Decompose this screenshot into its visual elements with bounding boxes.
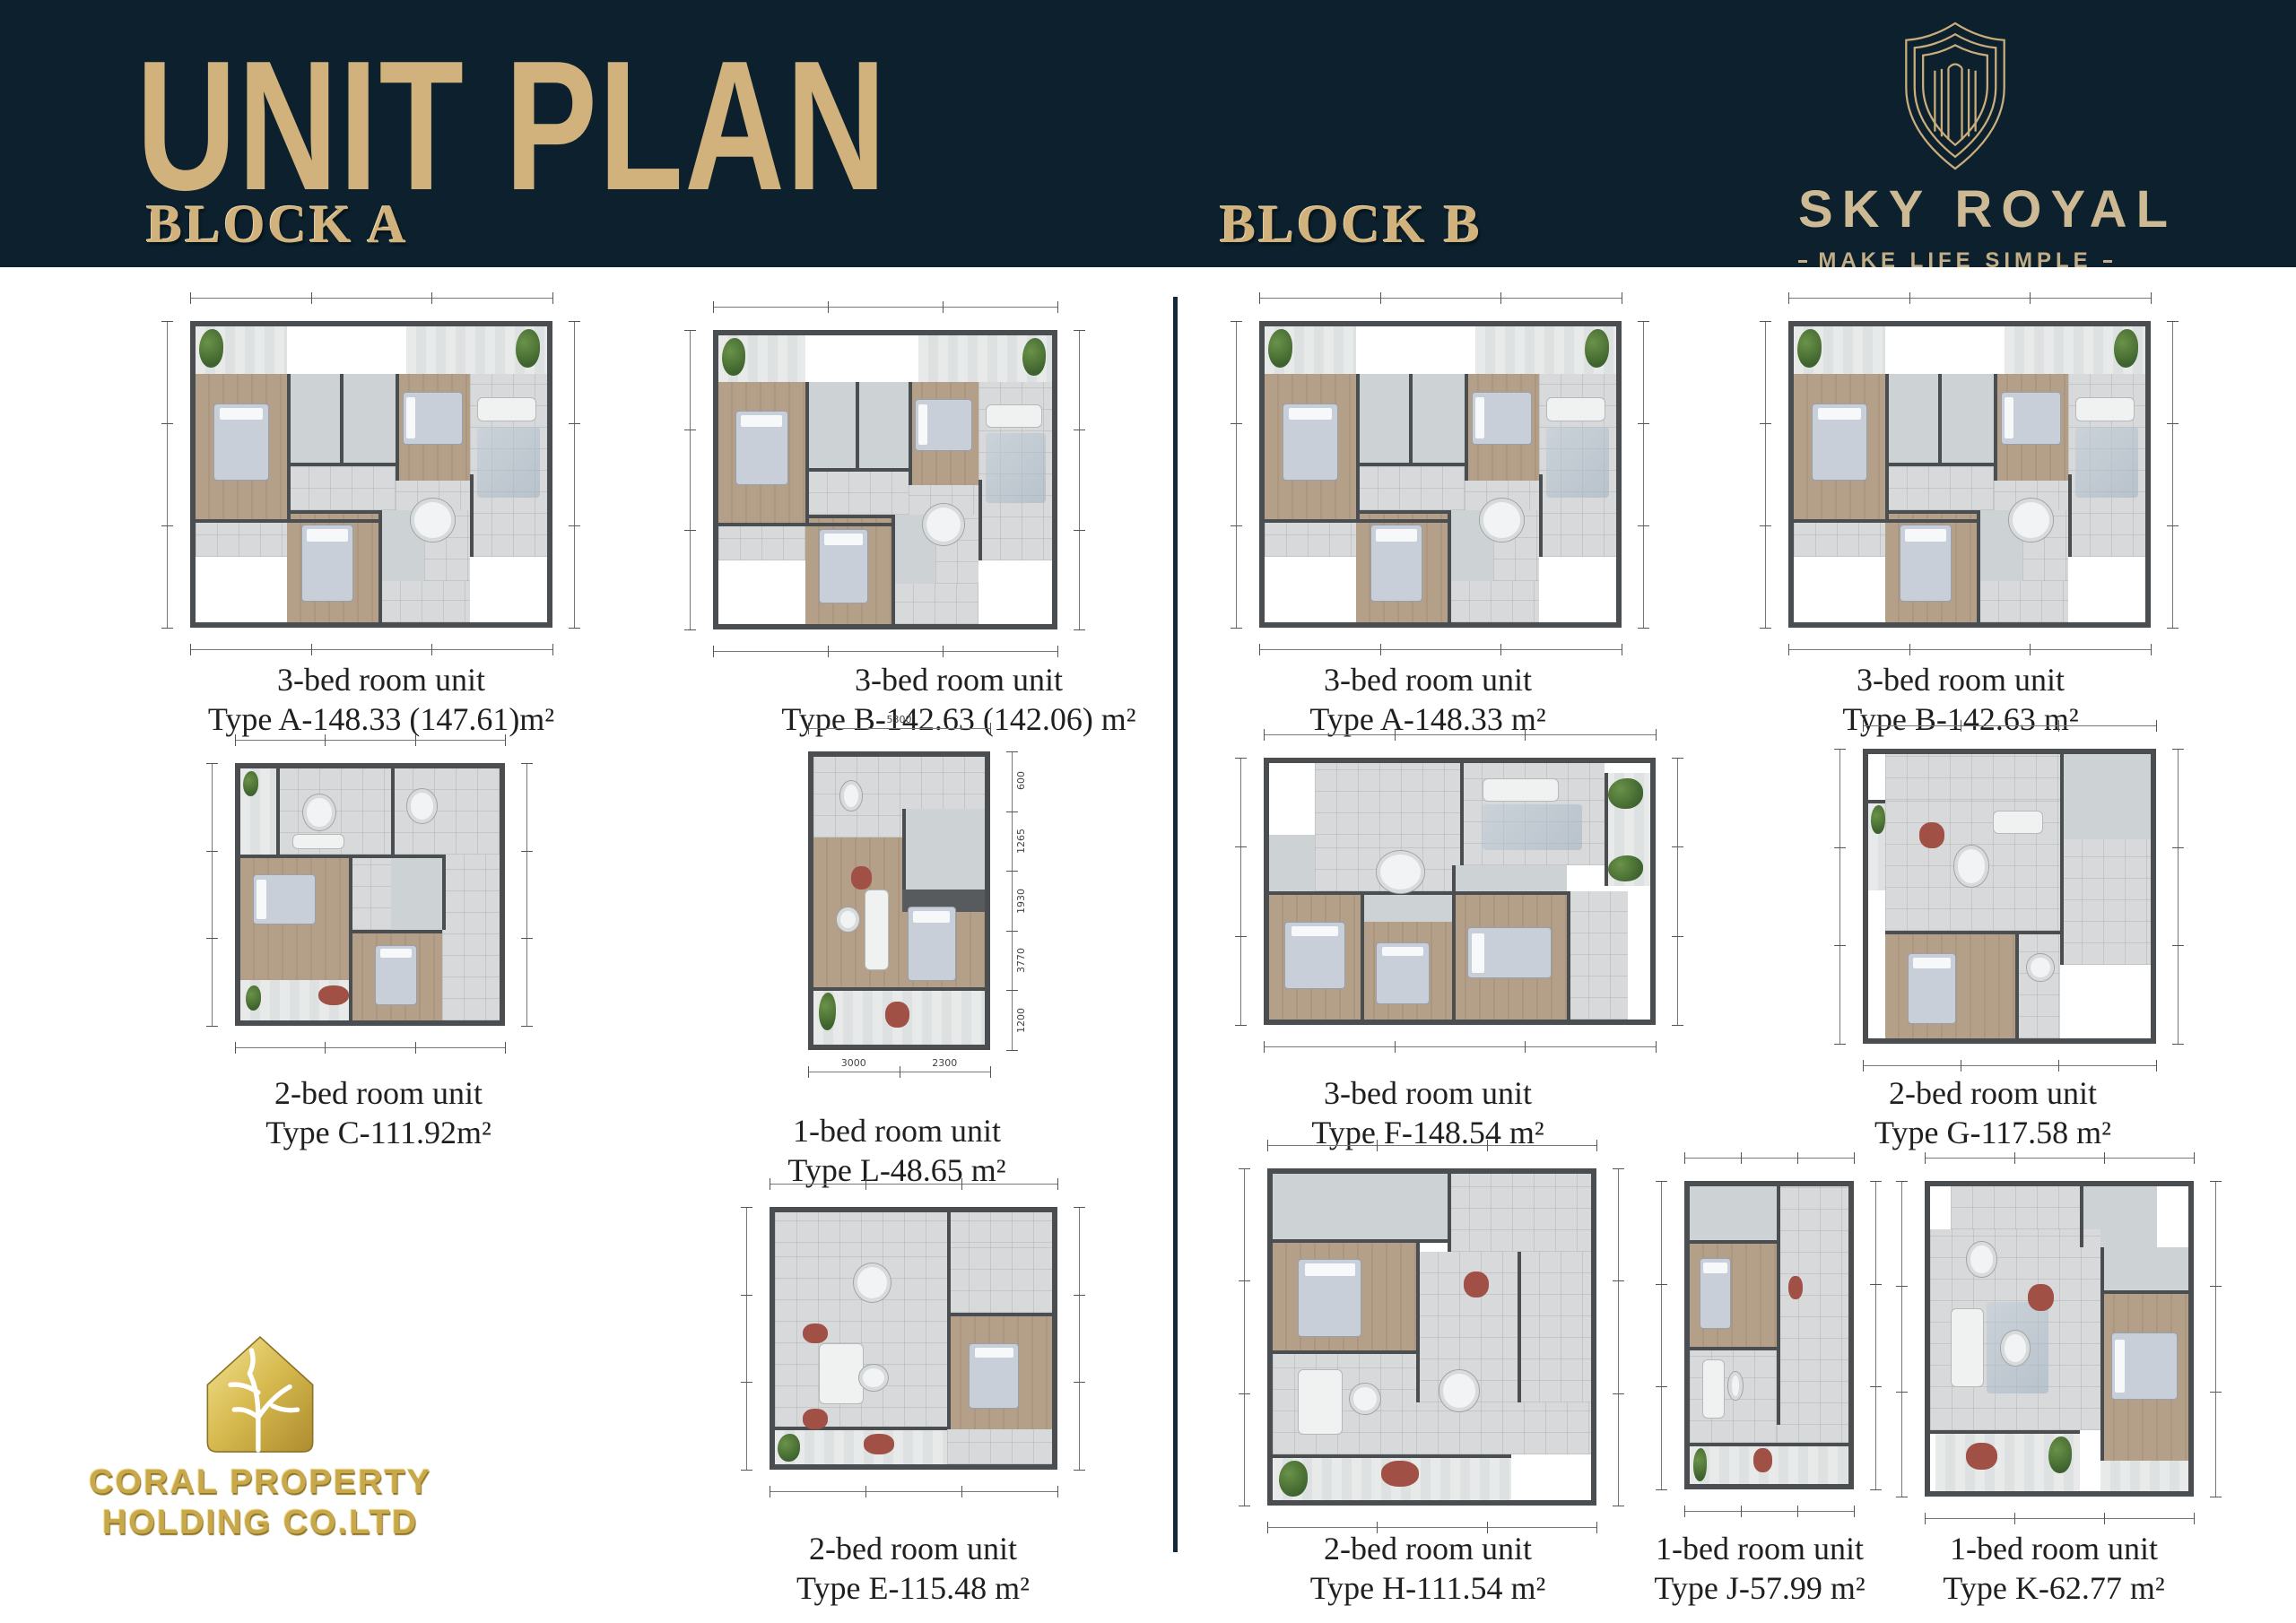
dimension-tick (190, 292, 191, 304)
dimension-tick (1074, 1382, 1085, 1383)
interior-wall (349, 855, 352, 1020)
interior-wall (470, 474, 474, 557)
interior-wall (1409, 374, 1413, 463)
interior-wall (196, 519, 378, 523)
dimension-tick (2210, 1286, 2222, 1287)
dimension-tick (1961, 1060, 1961, 1072)
dimension-tick (1854, 1152, 1855, 1164)
dining-table-icon (1439, 1369, 1480, 1411)
chair-icon (803, 1324, 828, 1343)
room-tile (1315, 763, 1460, 835)
room-bath (2100, 1247, 2188, 1290)
interior-wall (2100, 1247, 2104, 1461)
dimension-tick (521, 938, 533, 939)
plant-icon (1585, 329, 1609, 368)
interior-wall (1690, 1347, 1777, 1350)
floor-plan-block-b-type-j (1684, 1181, 1854, 1489)
interior-wall (805, 515, 892, 518)
room-void (1511, 1454, 1591, 1500)
interior-wall (775, 1427, 947, 1430)
room-tile (1794, 522, 1885, 558)
unit-caption-block-a-type-c: 2-bed room unitType C-111.92m² (100, 1074, 657, 1153)
dimension-rail (1240, 758, 1241, 1025)
room-void (2068, 557, 2145, 622)
dimension-tick (569, 525, 580, 526)
room-tile (2015, 931, 2060, 1038)
dimension-tick (2172, 1044, 2184, 1045)
dimension-tick (865, 1486, 866, 1497)
dimension-label: 1200 (1015, 994, 1027, 1047)
dimension-tick (2014, 1152, 2015, 1164)
dimension-tick (2194, 1513, 2195, 1524)
dimension-tick (741, 1207, 752, 1208)
room-bath (1409, 374, 1465, 463)
room-tile (287, 463, 396, 510)
dimension-rail (1788, 298, 2151, 299)
dimension-rail (1012, 751, 1013, 1050)
dimension-tick (1006, 871, 1018, 872)
dimension-tick (1672, 758, 1683, 759)
dimension-tick (552, 644, 553, 655)
dimension-tick (569, 628, 580, 629)
interior-wall (1448, 510, 1451, 622)
room-tile (1951, 1186, 2080, 1229)
dimension-rail (713, 651, 1057, 652)
dimension-tick (1638, 321, 1649, 322)
company-name-line1: CORAL PROPERTY (85, 1463, 435, 1502)
dimension-tick (1638, 423, 1649, 424)
dimension-tick (1259, 292, 1260, 304)
dimension-rail (1264, 1046, 1656, 1047)
room-tile (718, 526, 805, 561)
sofa-icon (2075, 397, 2135, 421)
dimension-tick (1834, 1044, 1846, 1045)
room-tile (1885, 463, 1995, 510)
dimension-tick (431, 644, 432, 655)
dining-table-icon (1966, 1241, 1997, 1278)
dimension-tick (1909, 292, 1910, 304)
plant-icon (1022, 338, 1046, 376)
rug-icon (477, 427, 541, 498)
unit-caption-type: 1-bed room unit (619, 1112, 1175, 1151)
dimension-tick (1613, 1280, 1624, 1281)
room-tile (891, 584, 978, 624)
room-void (1885, 326, 2005, 374)
dimension-tick (1487, 1140, 1488, 1151)
interior-wall (1794, 519, 1977, 523)
dimension-tick (161, 423, 173, 424)
chair-icon (2028, 1284, 2054, 1312)
dimension-tick (684, 430, 696, 430)
room-tile (1567, 891, 1628, 1020)
dimension-rail (235, 740, 505, 741)
bed-icon (1284, 922, 1345, 988)
dimension-tick (1074, 430, 1085, 430)
chair-icon (851, 866, 872, 890)
interior-wall (1265, 519, 1448, 523)
dimension-tick (1896, 1181, 1908, 1182)
interior-wall (2080, 1186, 2083, 1247)
dimension-tick (1672, 846, 1683, 847)
room-tile (349, 855, 390, 930)
interior-wall (1777, 1186, 1780, 1425)
dimension-tick (1259, 644, 1260, 655)
dimension-tick (325, 1042, 326, 1054)
unit-block-b-type-g (1822, 707, 2197, 1085)
dimension-tick (1074, 330, 1085, 331)
dimension-tick (2104, 1152, 2105, 1164)
room-tile (1777, 1425, 1848, 1443)
room-tile (442, 855, 500, 1020)
room-tile (947, 1429, 1052, 1464)
room-tile (1518, 1252, 1591, 1402)
dimension-tick (1788, 644, 1789, 655)
dimension-tick (505, 1042, 506, 1054)
dimension-tick (713, 301, 714, 313)
floor-plan-block-b-type-g (1863, 749, 2156, 1044)
unit-caption-type: 3-bed room unit (103, 661, 659, 700)
dimension-rail (1863, 1065, 2156, 1066)
dimension-tick (808, 723, 809, 734)
sofa-icon (1993, 811, 2044, 833)
room-void (1930, 1186, 1951, 1229)
room-bath (805, 382, 856, 469)
dimension-rail (1661, 1181, 1662, 1489)
interior-wall (1273, 1454, 1511, 1458)
dimension-tick (961, 1486, 962, 1497)
dimension-rail (1863, 725, 2156, 726)
plant-icon (1871, 805, 1885, 834)
dimension-tick (1231, 423, 1242, 424)
room-tile (947, 1212, 1052, 1243)
dimension-rail (526, 763, 527, 1026)
plant-icon (2114, 329, 2138, 368)
dining-table-icon (1479, 498, 1525, 542)
bed-icon (1467, 927, 1552, 978)
unit-caption-area: Type C-111.92m² (100, 1114, 657, 1153)
dimension-tick (2151, 292, 2152, 304)
plant-icon (1608, 778, 1642, 809)
chair-icon (803, 1409, 828, 1428)
rug-icon (1546, 427, 1610, 498)
interior-wall (1518, 1252, 1521, 1402)
room-void (1356, 326, 1475, 374)
dimension-tick (1239, 1280, 1250, 1281)
bed-icon (915, 399, 971, 451)
bed-icon (375, 945, 416, 1005)
unit-block-b-type-h (1226, 1127, 1638, 1547)
dimension-tick (1057, 301, 1058, 313)
interior-wall (1977, 510, 1980, 622)
room-tile (196, 522, 287, 558)
sofa-icon (865, 890, 889, 970)
dimension-tick (1863, 1060, 1864, 1072)
plant-icon (516, 329, 540, 368)
sofa-icon (1483, 778, 1559, 802)
room-tile (378, 581, 470, 622)
plant-icon (778, 1434, 800, 1462)
sofa-icon (1702, 1359, 1725, 1419)
dining-table-icon (1376, 850, 1425, 894)
dimension-tick (1235, 758, 1247, 759)
dimension-tick (206, 1026, 218, 1027)
dimension-rail (713, 307, 1057, 308)
bed-icon (1298, 1259, 1361, 1337)
unit-caption-type: 1-bed room unit (1776, 1530, 2296, 1569)
dimension-tick (1656, 1284, 1667, 1285)
dimension-tick (943, 646, 944, 657)
dimension-rail (1677, 758, 1678, 1025)
dimension-tick (190, 644, 191, 655)
dimension-tick (2156, 720, 2157, 732)
unit-block-b-type-f (1222, 716, 1697, 1066)
dimension-tick (1074, 1470, 1085, 1471)
dimension-tick (431, 292, 432, 304)
dimension-tick (808, 1066, 809, 1078)
interior-wall (396, 374, 399, 481)
dimension-rail (1684, 1158, 1854, 1159)
interior-wall (2100, 1290, 2188, 1294)
dimension-tick (2194, 1152, 2195, 1164)
dimension-tick (2210, 1392, 2222, 1393)
dimension-tick (1074, 1207, 1085, 1208)
dimension-tick (1788, 292, 1789, 304)
unit-caption-area: Type K-62.77 m² (1776, 1569, 2296, 1609)
room-bath (1690, 1186, 1777, 1240)
interior-wall (287, 463, 396, 466)
dimension-tick (1797, 1152, 1798, 1164)
dimension-label: 2300 (918, 1057, 971, 1069)
dimension-tick (206, 851, 218, 852)
dimension-label: 3770 (1015, 933, 1027, 987)
interior-wall (1690, 1443, 1848, 1446)
dimension-tick (1672, 1025, 1683, 1026)
room-tile (1885, 754, 2060, 800)
floor-plan-block-b-type-h (1267, 1168, 1596, 1506)
room-tile (2060, 839, 2151, 964)
chair-icon (1381, 1461, 1420, 1487)
dimension-tick (1074, 629, 1085, 630)
dimension-tick (161, 628, 173, 629)
floor-plan-block-b-type-k (1925, 1181, 2194, 1497)
dimension-tick (1760, 321, 1771, 322)
room-bath (2060, 754, 2151, 839)
dimension-tick (1231, 321, 1242, 322)
dimension-tick (741, 1470, 752, 1471)
dimension-tick (1656, 1386, 1667, 1387)
unit-block-b-type-b (1747, 280, 2192, 669)
interior-wall (909, 382, 912, 486)
dimension-rail (190, 649, 552, 650)
dimension-tick (206, 938, 218, 939)
plant-icon (819, 993, 836, 1030)
room-tile (1777, 1186, 1848, 1425)
dimension-tick (1741, 1152, 1742, 1164)
room-tile (1416, 1402, 1591, 1454)
company-logo: CORAL PROPERTY HOLDING CO.LTD (85, 1325, 435, 1542)
room-bath (1938, 374, 1995, 463)
dimension-rail (1925, 1158, 2194, 1159)
dimension-tick (770, 1486, 770, 1497)
sofa-icon (1298, 1369, 1343, 1435)
chair-icon (1966, 1443, 1997, 1471)
dimension-tick (1231, 628, 1242, 629)
dimension-tick (2172, 847, 2184, 848)
unit-block-b-type-k (1883, 1140, 2235, 1538)
dimension-tick (1834, 945, 1846, 946)
interior-wall (718, 523, 891, 526)
room-tile (1273, 1350, 1416, 1454)
interior-wall (856, 382, 859, 469)
dimension-tick (569, 321, 580, 322)
dimension-tick (1235, 936, 1247, 937)
dimension-tick (235, 1042, 236, 1054)
interior-wall (1448, 1174, 1451, 1252)
bed-icon (1376, 942, 1430, 1004)
dining-table-icon (2008, 498, 2054, 542)
dimension-tick (1672, 936, 1683, 937)
room-tile (1265, 522, 1356, 558)
interior-wall (1539, 474, 1543, 557)
dimension-rail (1839, 749, 1840, 1044)
interior-wall (1269, 891, 1567, 895)
interior-wall (1868, 800, 1885, 803)
chair-icon (885, 1002, 909, 1028)
bed-icon (1812, 404, 1868, 481)
dimension-tick (1656, 1181, 1667, 1182)
block-a-label: BLOCK A (146, 194, 409, 256)
dimension-rail (167, 321, 168, 628)
dimension-rail (190, 298, 552, 299)
unit-caption-block-a-type-e: 2-bed room unitType E-115.48 m² (635, 1530, 1191, 1609)
dimension-tick (1057, 1486, 1058, 1497)
dimension-tick (2167, 321, 2179, 322)
dimension-tick (1074, 530, 1085, 531)
interior-wall (1885, 463, 1995, 466)
bed-icon (819, 529, 869, 604)
floor-plan-block-b-type-a (1259, 321, 1622, 628)
dimension-tick (1656, 729, 1657, 741)
bed-icon (213, 404, 270, 481)
room-bath (340, 374, 396, 463)
dimension-tick (770, 1178, 770, 1190)
rug-icon (2075, 427, 2139, 498)
dimension-tick (1395, 1041, 1396, 1053)
unit-caption-type: 3-bed room unit (1683, 661, 2239, 700)
plant-icon (722, 338, 745, 376)
dimension-tick (2167, 525, 2179, 526)
dimension-rail (1875, 1181, 1876, 1489)
interior-wall (805, 468, 909, 472)
dimension-tick (1006, 931, 1018, 932)
interior-wall (1416, 1239, 1420, 1402)
unit-block-b-type-j (1643, 1140, 1895, 1531)
dimension-tick (1622, 292, 1622, 304)
interior-wall (1994, 374, 1997, 481)
dimension-tick (684, 629, 696, 630)
interior-wall (276, 768, 280, 855)
dimension-tick (1638, 525, 1649, 526)
tagline-dash-left (1798, 260, 1807, 263)
rug-icon (1483, 804, 1582, 850)
sofa-icon (1546, 397, 1606, 421)
dimension-rail (1765, 321, 1766, 628)
interior-wall (902, 809, 906, 890)
dimension-tick (325, 734, 326, 746)
interior-wall (1361, 891, 1364, 1020)
dimension-tick (161, 321, 173, 322)
bed-icon (1283, 404, 1339, 481)
dimension-rail (2215, 1181, 2216, 1497)
bed-icon (2001, 392, 2061, 445)
unit-caption-area: Type E-115.48 m² (635, 1569, 1191, 1609)
dimension-tick (415, 734, 416, 746)
floor-plan-block-a-type-l (808, 751, 990, 1050)
dimension-rail (746, 1207, 747, 1470)
dining-table-icon (406, 788, 438, 823)
interior-wall (1690, 1240, 1777, 1244)
interior-wall (891, 515, 895, 624)
dimension-tick (1006, 990, 1018, 991)
interior-wall (1885, 374, 1889, 522)
interior-wall (805, 382, 809, 526)
unit-caption-type: 2-bed room unit (100, 1074, 657, 1114)
room-bath (1269, 835, 1315, 891)
bed-icon (1700, 1258, 1731, 1330)
dimension-tick (2172, 749, 2184, 750)
room-void (2157, 1186, 2188, 1247)
dimension-tick (1870, 1284, 1882, 1285)
unit-block-a-type-l: 5300300023006001265193037701200 (767, 710, 1031, 1091)
dimension-tick (1741, 1506, 1742, 1517)
dimension-tick (1239, 1506, 1250, 1506)
dimension-tick (521, 1026, 533, 1027)
company-name-line2: HOLDING CO.LTD (85, 1504, 435, 1542)
dimension-tick (1622, 644, 1622, 655)
dimension-tick (684, 530, 696, 531)
dimension-tick (235, 734, 236, 746)
dimension-tick (1006, 811, 1018, 812)
dining-table-icon (839, 780, 864, 811)
sofa-icon (292, 834, 344, 849)
dimension-tick (990, 723, 991, 734)
room-bath (1361, 891, 1452, 922)
plant-icon (2048, 1436, 2072, 1473)
bed-icon (735, 411, 789, 486)
interior-wall (1885, 931, 2060, 934)
interior-wall (1567, 891, 1570, 1020)
interior-wall (340, 374, 344, 463)
dimension-tick (2058, 1060, 2059, 1072)
chair-icon (1919, 822, 1944, 848)
dimension-tick (713, 646, 714, 657)
dimension-tick (865, 1178, 866, 1190)
dimension-tick (415, 1042, 416, 1054)
room-void (2060, 965, 2151, 1038)
page-header: UNIT PLAN BLOCK A BLOCK B SKY ROYAL MAKE… (0, 0, 2296, 267)
dimension-tick (741, 1382, 752, 1383)
unit-block-a-type-c (194, 722, 546, 1067)
unit-block-a-type-b (672, 289, 1099, 671)
dimension-tick (1525, 1041, 1526, 1053)
dimension-tick (1239, 1168, 1250, 1169)
room-void (805, 335, 918, 382)
dimension-rail (1264, 734, 1656, 735)
room-bath (1885, 374, 1938, 463)
interior-wall (978, 480, 982, 560)
dimension-tick (1057, 1178, 1058, 1190)
dimension-rail (1079, 330, 1080, 629)
